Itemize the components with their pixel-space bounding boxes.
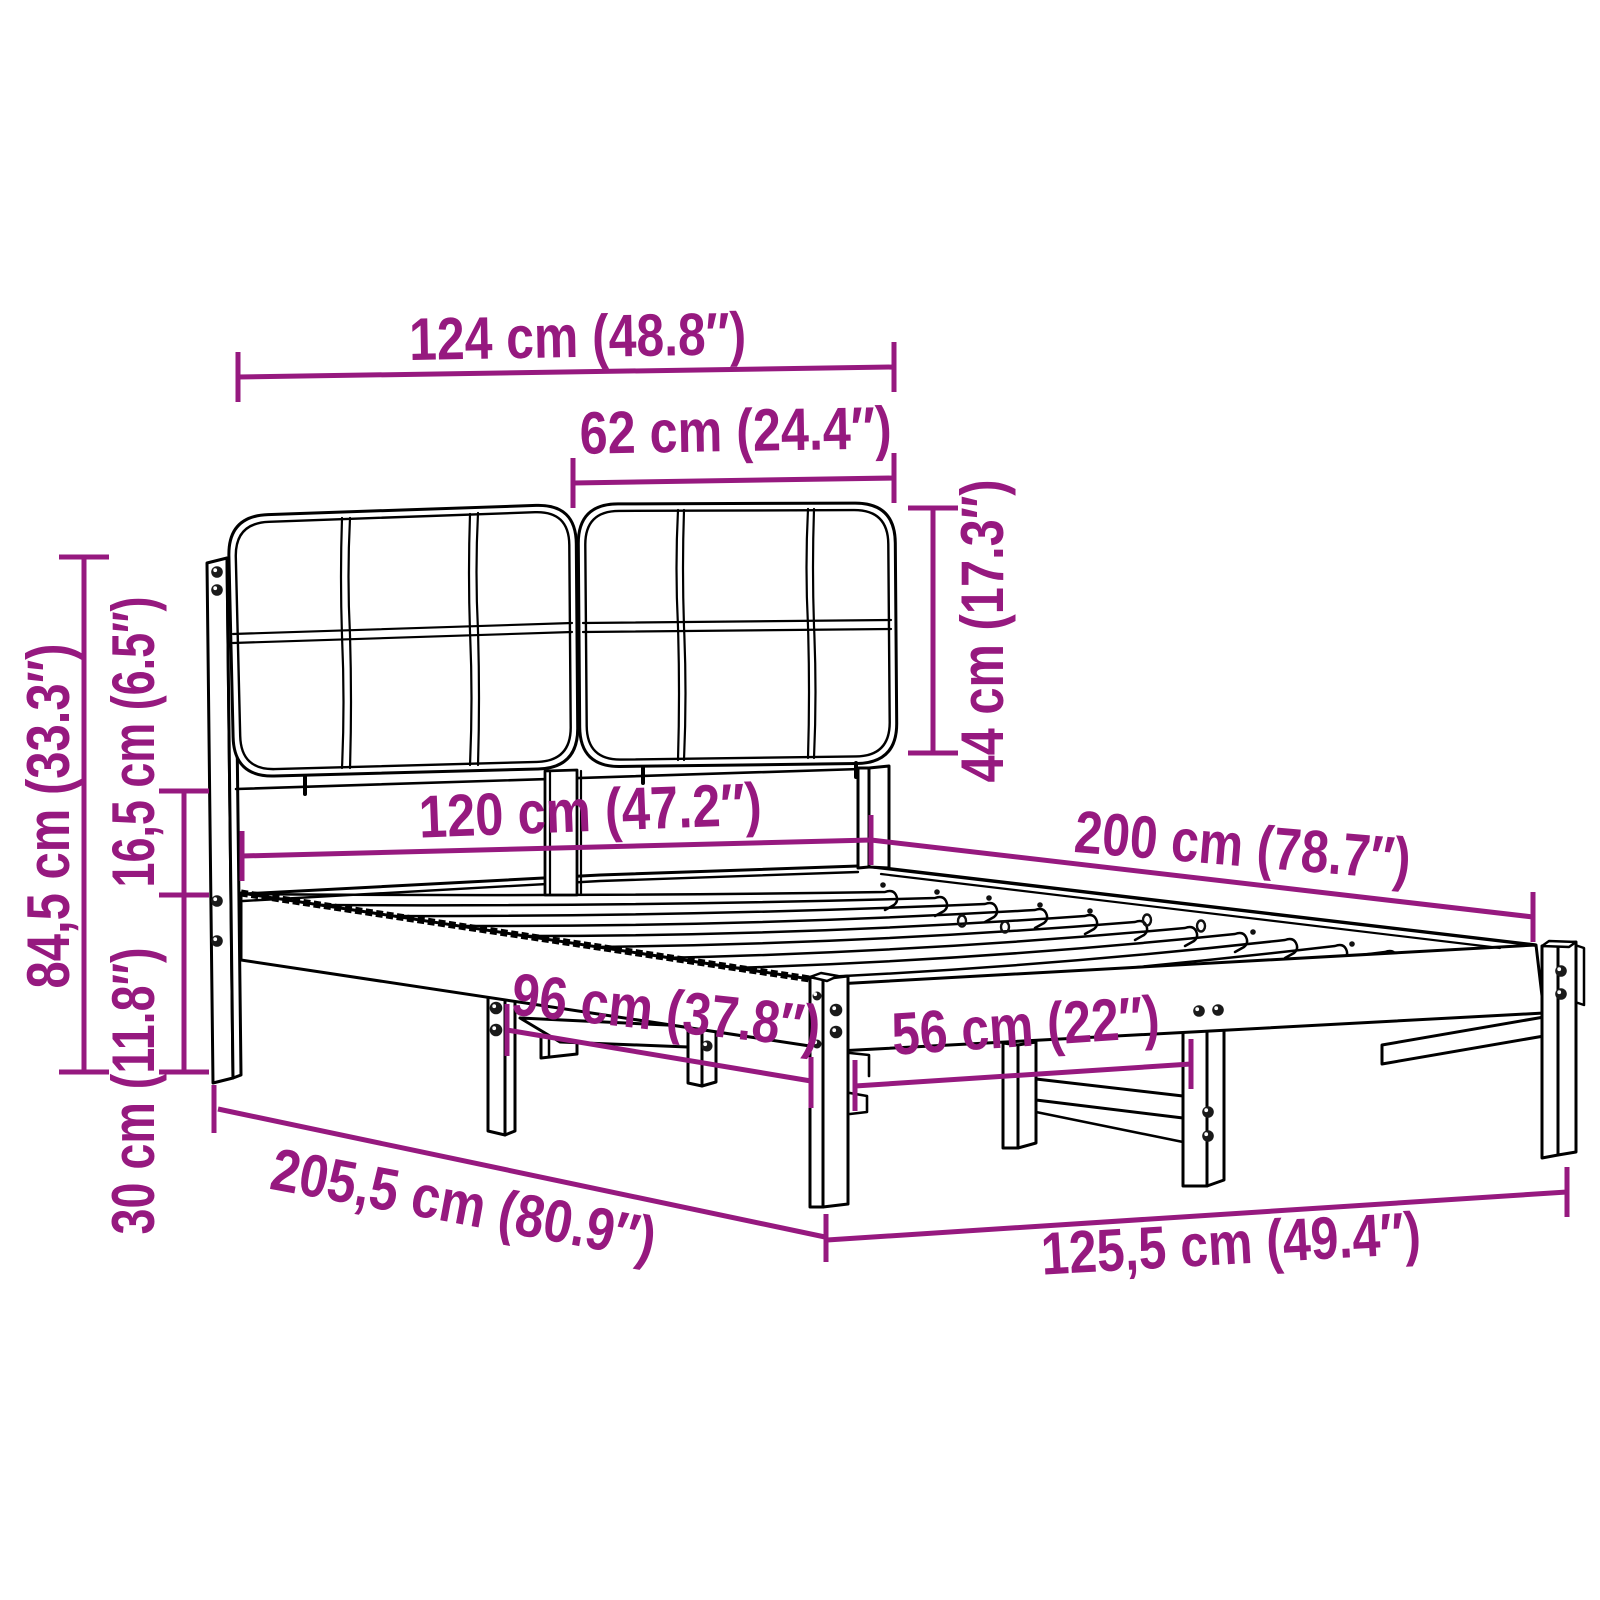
svg-text:44 cm (17.3″): 44 cm (17.3″) <box>949 480 1016 783</box>
svg-text:124 cm (48.8″): 124 cm (48.8″) <box>409 300 747 373</box>
svg-text:84,5 cm (33.3″): 84,5 cm (33.3″) <box>15 644 82 989</box>
svg-text:30 cm (11.8″): 30 cm (11.8″) <box>100 948 167 1235</box>
svg-text:16,5 cm (6.5″): 16,5 cm (6.5″) <box>100 597 167 888</box>
svg-text:62 cm (24.4″): 62 cm (24.4″) <box>579 394 892 466</box>
svg-text:120 cm (47.2″): 120 cm (47.2″) <box>418 770 763 850</box>
